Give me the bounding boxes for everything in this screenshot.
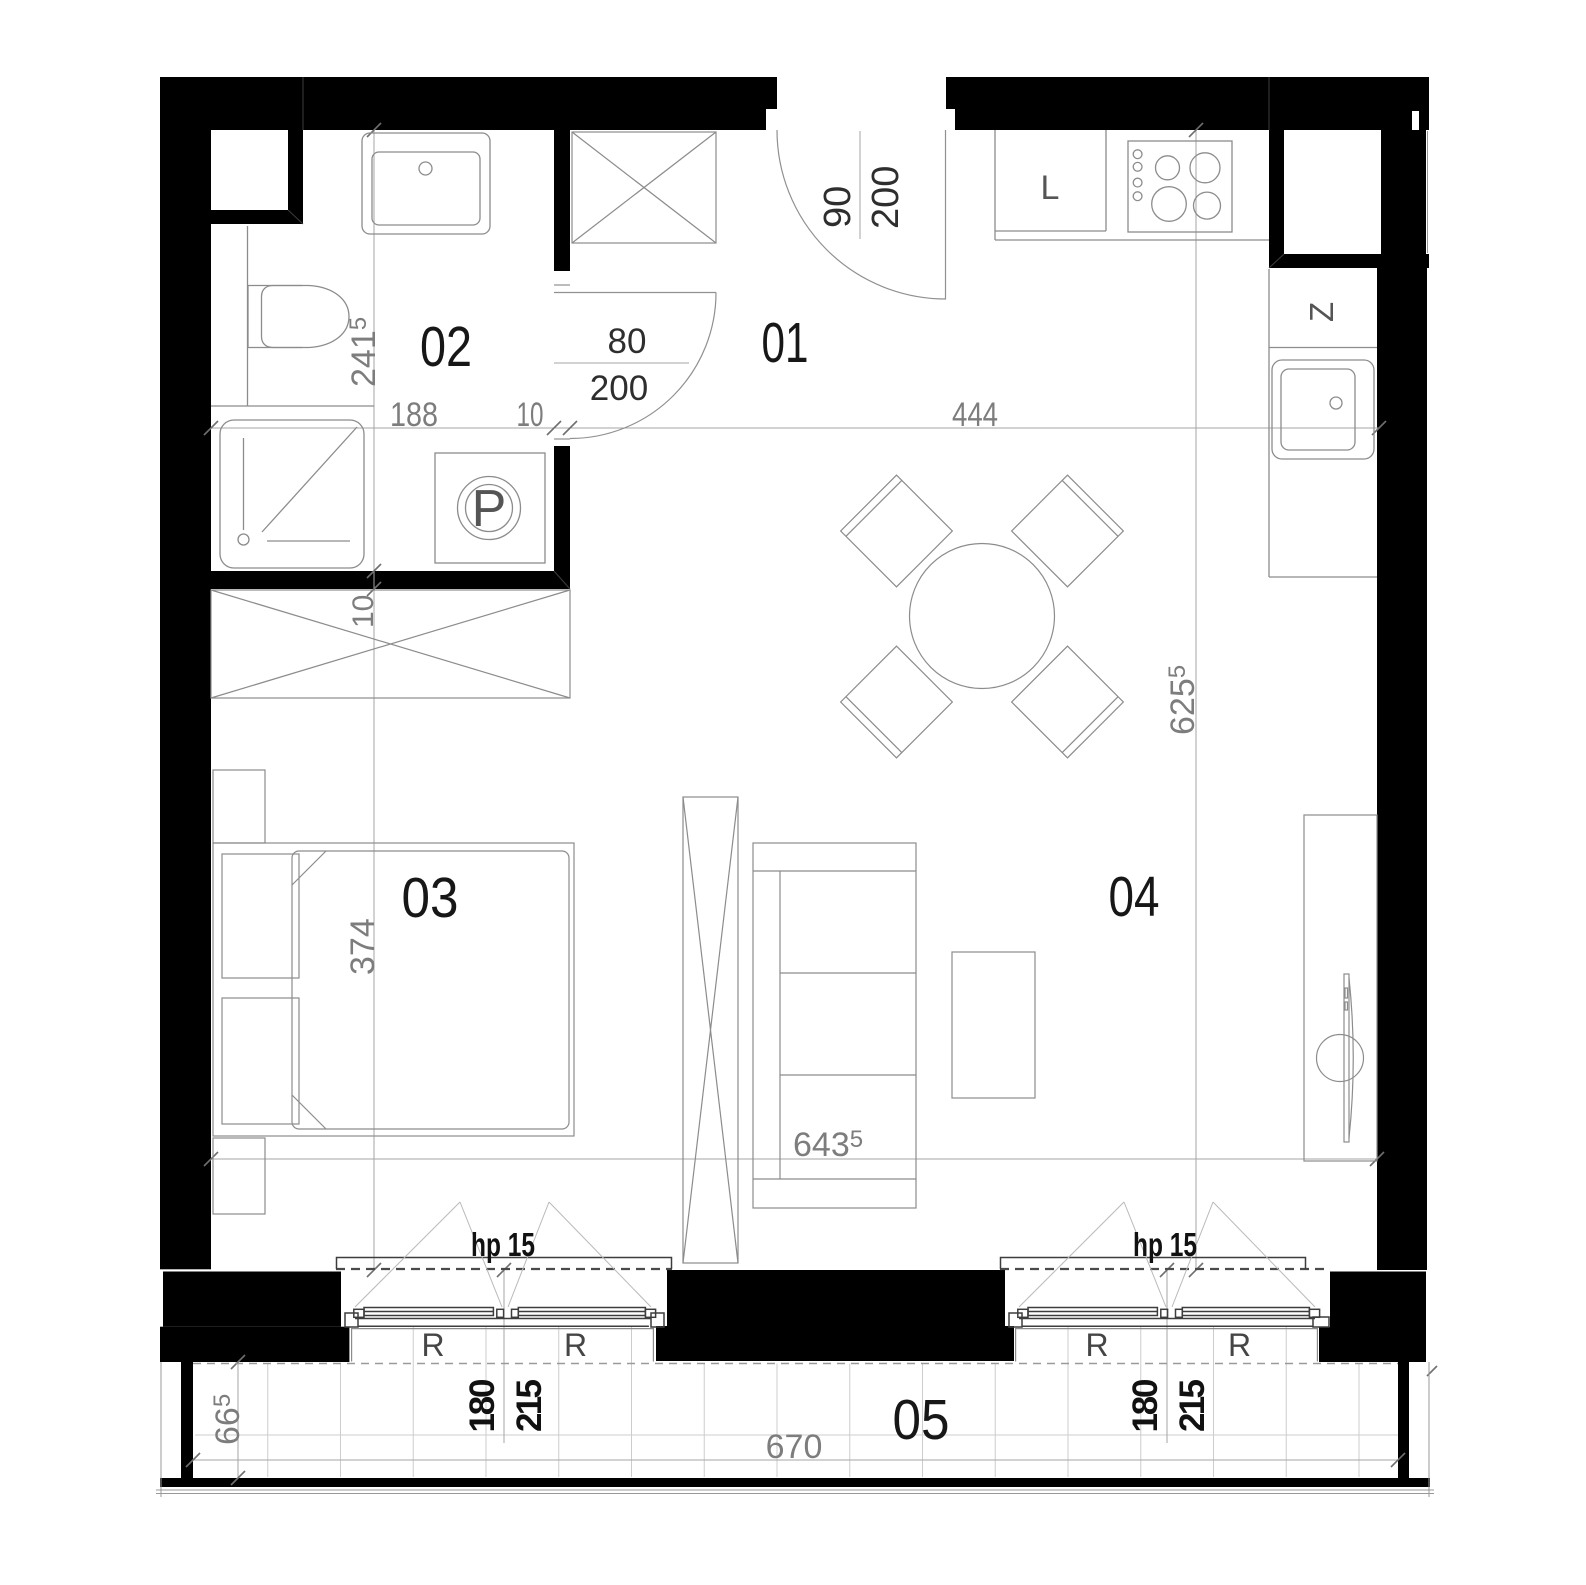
svg-text:Z: Z <box>1303 302 1340 322</box>
svg-text:10: 10 <box>347 595 380 628</box>
svg-text:215: 215 <box>510 1379 549 1432</box>
svg-text:200: 200 <box>865 166 907 229</box>
svg-text:R: R <box>421 1327 444 1363</box>
svg-text:01: 01 <box>762 311 809 375</box>
svg-text:374: 374 <box>344 918 382 975</box>
svg-text:215: 215 <box>1173 1379 1212 1432</box>
svg-text:03: 03 <box>402 866 459 930</box>
svg-text:05: 05 <box>893 1388 950 1452</box>
svg-text:R: R <box>1085 1327 1108 1363</box>
svg-text:R: R <box>564 1327 587 1363</box>
svg-text:02: 02 <box>420 315 472 379</box>
svg-text:180: 180 <box>463 1379 502 1433</box>
svg-text:670: 670 <box>766 1428 823 1466</box>
svg-text:P: P <box>472 480 507 538</box>
svg-text:10: 10 <box>517 396 544 434</box>
svg-text:04: 04 <box>1109 865 1160 929</box>
svg-text:80: 80 <box>608 322 647 361</box>
svg-text:180: 180 <box>1126 1379 1165 1433</box>
svg-text:444: 444 <box>952 396 998 434</box>
svg-text:hp 15: hp 15 <box>471 1226 535 1263</box>
svg-text:200: 200 <box>590 369 648 408</box>
svg-text:R: R <box>1228 1327 1251 1363</box>
svg-text:hp 15: hp 15 <box>1133 1226 1197 1263</box>
svg-text:188: 188 <box>390 396 438 434</box>
svg-text:L: L <box>1041 169 1060 207</box>
svg-text:90: 90 <box>817 186 859 228</box>
